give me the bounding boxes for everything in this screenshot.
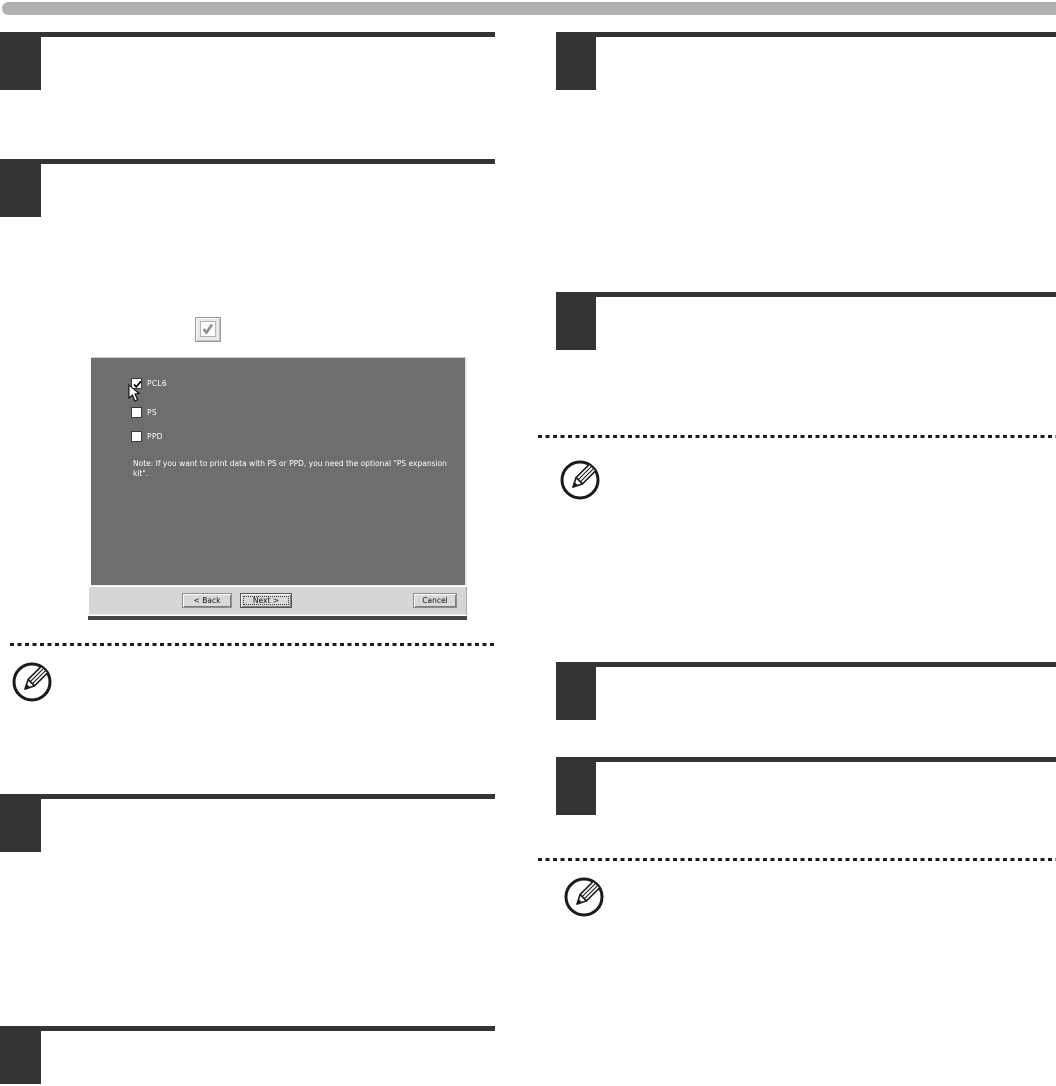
ppd-label: PPD [147, 432, 163, 441]
back-button[interactable]: < Back [182, 593, 232, 608]
mouse-cursor-icon [128, 384, 141, 403]
ppd-checkbox[interactable] [131, 431, 142, 442]
dialog-content-area: PCL6 PS PPD Note: If you want to print d… [88, 357, 467, 586]
step-rule [41, 1026, 495, 1031]
step-rule [41, 159, 495, 164]
dotted-separator [538, 435, 1056, 438]
step-rule [596, 662, 1056, 667]
checked-checkbox-graphic [195, 317, 221, 342]
step-rule [596, 32, 1056, 37]
ps-checkbox[interactable] [131, 407, 142, 418]
checkbox-row-ps[interactable]: PS [131, 407, 157, 418]
dotted-separator [538, 858, 1056, 861]
step-number-block [556, 292, 596, 350]
pencil-note-icon [563, 876, 605, 918]
step-rule [596, 292, 1056, 297]
dotted-separator [10, 643, 496, 646]
step-number-block [0, 159, 41, 217]
step-rule [596, 757, 1056, 762]
step-number-block [0, 794, 41, 852]
step-number-block [0, 1026, 41, 1084]
dialog-bottom-shadow [88, 616, 467, 620]
dialog-note-text: Note: If you want to print data with PS … [133, 459, 458, 479]
step-number-block [556, 757, 596, 815]
next-button[interactable]: Next > [240, 593, 292, 608]
pcl6-label: PCL6 [147, 379, 167, 388]
step-number-block [556, 32, 596, 90]
step-rule [41, 794, 495, 799]
checkbox-field [200, 321, 216, 337]
manual-page: PCL6 PS PPD Note: If you want to print d… [0, 0, 1056, 1086]
step-number-block [556, 662, 596, 720]
pencil-note-icon [559, 459, 601, 501]
cancel-button[interactable]: Cancel [413, 593, 457, 608]
pencil-note-icon [11, 661, 53, 703]
step-rule [41, 32, 495, 37]
step-number-block [0, 32, 41, 90]
gray-check-icon [201, 322, 215, 336]
checkbox-row-ppd[interactable]: PPD [131, 431, 163, 442]
page-header-bar [2, 2, 1056, 15]
installer-dialog-screenshot: PCL6 PS PPD Note: If you want to print d… [88, 357, 467, 620]
ps-label: PS [147, 408, 157, 417]
dialog-button-bar: < Back Next > Cancel [88, 585, 467, 615]
